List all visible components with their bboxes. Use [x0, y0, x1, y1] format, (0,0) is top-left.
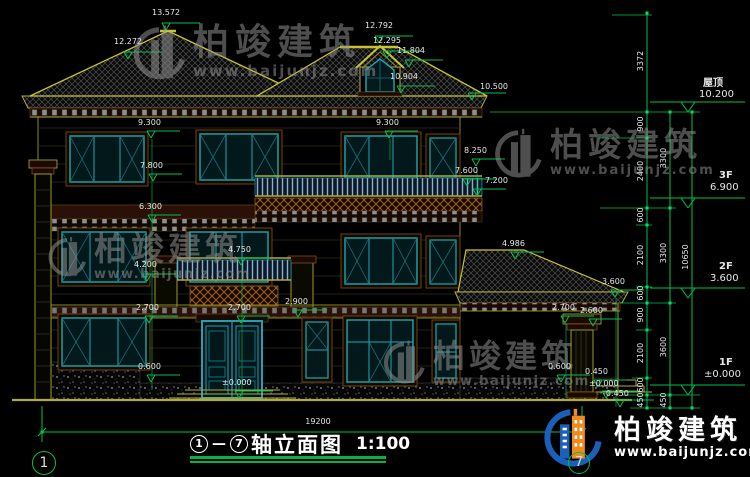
- title-underline-2: [190, 461, 386, 463]
- axis-bubble-7: 7: [568, 452, 590, 474]
- title-scale: 1:100: [356, 434, 410, 454]
- level-2f-value: 3.600: [710, 274, 739, 284]
- dimension-annotation: ±0.000: [222, 379, 252, 387]
- dimension-annotation: 11.804: [397, 47, 425, 55]
- level-1f-value: ±0.000: [704, 370, 741, 380]
- dimension-annotation: -0.450: [603, 390, 629, 398]
- title-separator: —: [212, 436, 226, 452]
- dimension-annotation: 4.750: [228, 246, 251, 254]
- drawing-title: 1 — 7 轴立面图 1:100: [190, 429, 410, 459]
- chain-dimension: 3372: [637, 39, 645, 83]
- level-roof-label: 屋顶: [703, 79, 723, 89]
- level-3f-label: 3F: [719, 171, 733, 181]
- watermark-logo-icon: [48, 232, 86, 294]
- dimension-annotation: 0.450: [585, 368, 608, 376]
- watermark-top: 柏竣建筑 www.baijunjz.com: [133, 24, 378, 98]
- level-1f-label: 1F: [719, 358, 733, 368]
- dimension-annotation: 2.900: [285, 298, 308, 306]
- chain-dimension: 900: [637, 102, 645, 146]
- dimension-annotation: 2.700: [136, 304, 159, 312]
- title-name: 轴立面图: [251, 429, 343, 459]
- dimension-annotation: 0.600: [548, 363, 571, 371]
- dimension-annotation: 9.300: [138, 119, 161, 127]
- brand-url: www.baijunjz.com: [614, 445, 750, 460]
- dimension-annotation: 8.250: [464, 147, 487, 155]
- dimension-annotation: 2.700: [552, 304, 575, 312]
- dimension-annotation: 7.600: [455, 167, 478, 175]
- chain-dimension: 600: [637, 193, 645, 237]
- dimension-annotation: 12.295: [373, 37, 401, 45]
- dimension-annotation: 2.700: [228, 304, 251, 312]
- dimension-annotation: 7.200: [485, 177, 508, 185]
- dimension-annotation: 10.904: [390, 73, 418, 81]
- brand-name: 柏竣建筑: [614, 416, 750, 446]
- level-3f-value: 6.900: [710, 183, 739, 193]
- watermark-url: www.baijunjz.com: [550, 163, 715, 178]
- dimension-annotation: 10.500: [480, 83, 508, 91]
- dimension-annotation: 4.200: [134, 261, 157, 269]
- chain-dimension: 2400: [637, 149, 645, 193]
- third-floor-windows: [66, 130, 460, 186]
- watermark-url: www.baijunjz.com: [193, 62, 378, 80]
- watermark-logo-icon: [383, 340, 425, 398]
- third-floor-balcony: [255, 176, 482, 222]
- chain-dimension: 3300: [660, 231, 668, 275]
- chain-dimension: 3600: [660, 325, 668, 369]
- title-axis-start: 1: [190, 435, 208, 453]
- dimension-annotation: 3.600: [602, 278, 625, 286]
- axis-bubble-1: 1: [32, 451, 56, 475]
- chain-dimension: 10650: [682, 235, 690, 279]
- title-axis-end: 7: [230, 435, 248, 453]
- dimension-annotation: 7.800: [140, 162, 163, 170]
- dimension-annotation: 0.600: [138, 363, 161, 371]
- level-2f-label: 2F: [719, 262, 733, 272]
- title-underline: [190, 456, 386, 459]
- dimension-annotation: 12.792: [365, 22, 393, 30]
- watermark-logo-icon: [133, 24, 185, 98]
- watermark-url: www.baijunjz.com: [94, 267, 251, 282]
- cad-elevation-drawing: 13.57212.27212.79212.29511.80410.90410.5…: [0, 0, 750, 477]
- watermark-url: www.baijunjz.com: [433, 374, 590, 389]
- chain-dimension: 3300: [660, 136, 668, 180]
- watermark-text: 柏竣建筑: [193, 24, 378, 62]
- dimension-annotation: ±0.000: [589, 380, 619, 388]
- overall-width-dimension: 19200: [288, 418, 348, 426]
- dimension-annotation: 13.572: [152, 9, 180, 17]
- dimension-annotation: 9.300: [376, 119, 399, 127]
- dimension-annotation: 6.300: [139, 203, 162, 211]
- dimension-annotation: 12.272: [114, 38, 142, 46]
- dimension-annotation: 4.986: [502, 240, 525, 248]
- dimension-annotation: 2.600: [580, 307, 603, 315]
- watermark-text: 柏竣建筑: [550, 128, 715, 163]
- level-roof-value: 10.200: [699, 90, 734, 100]
- watermark-right: 柏竣建筑 www.baijunjz.com: [494, 128, 715, 194]
